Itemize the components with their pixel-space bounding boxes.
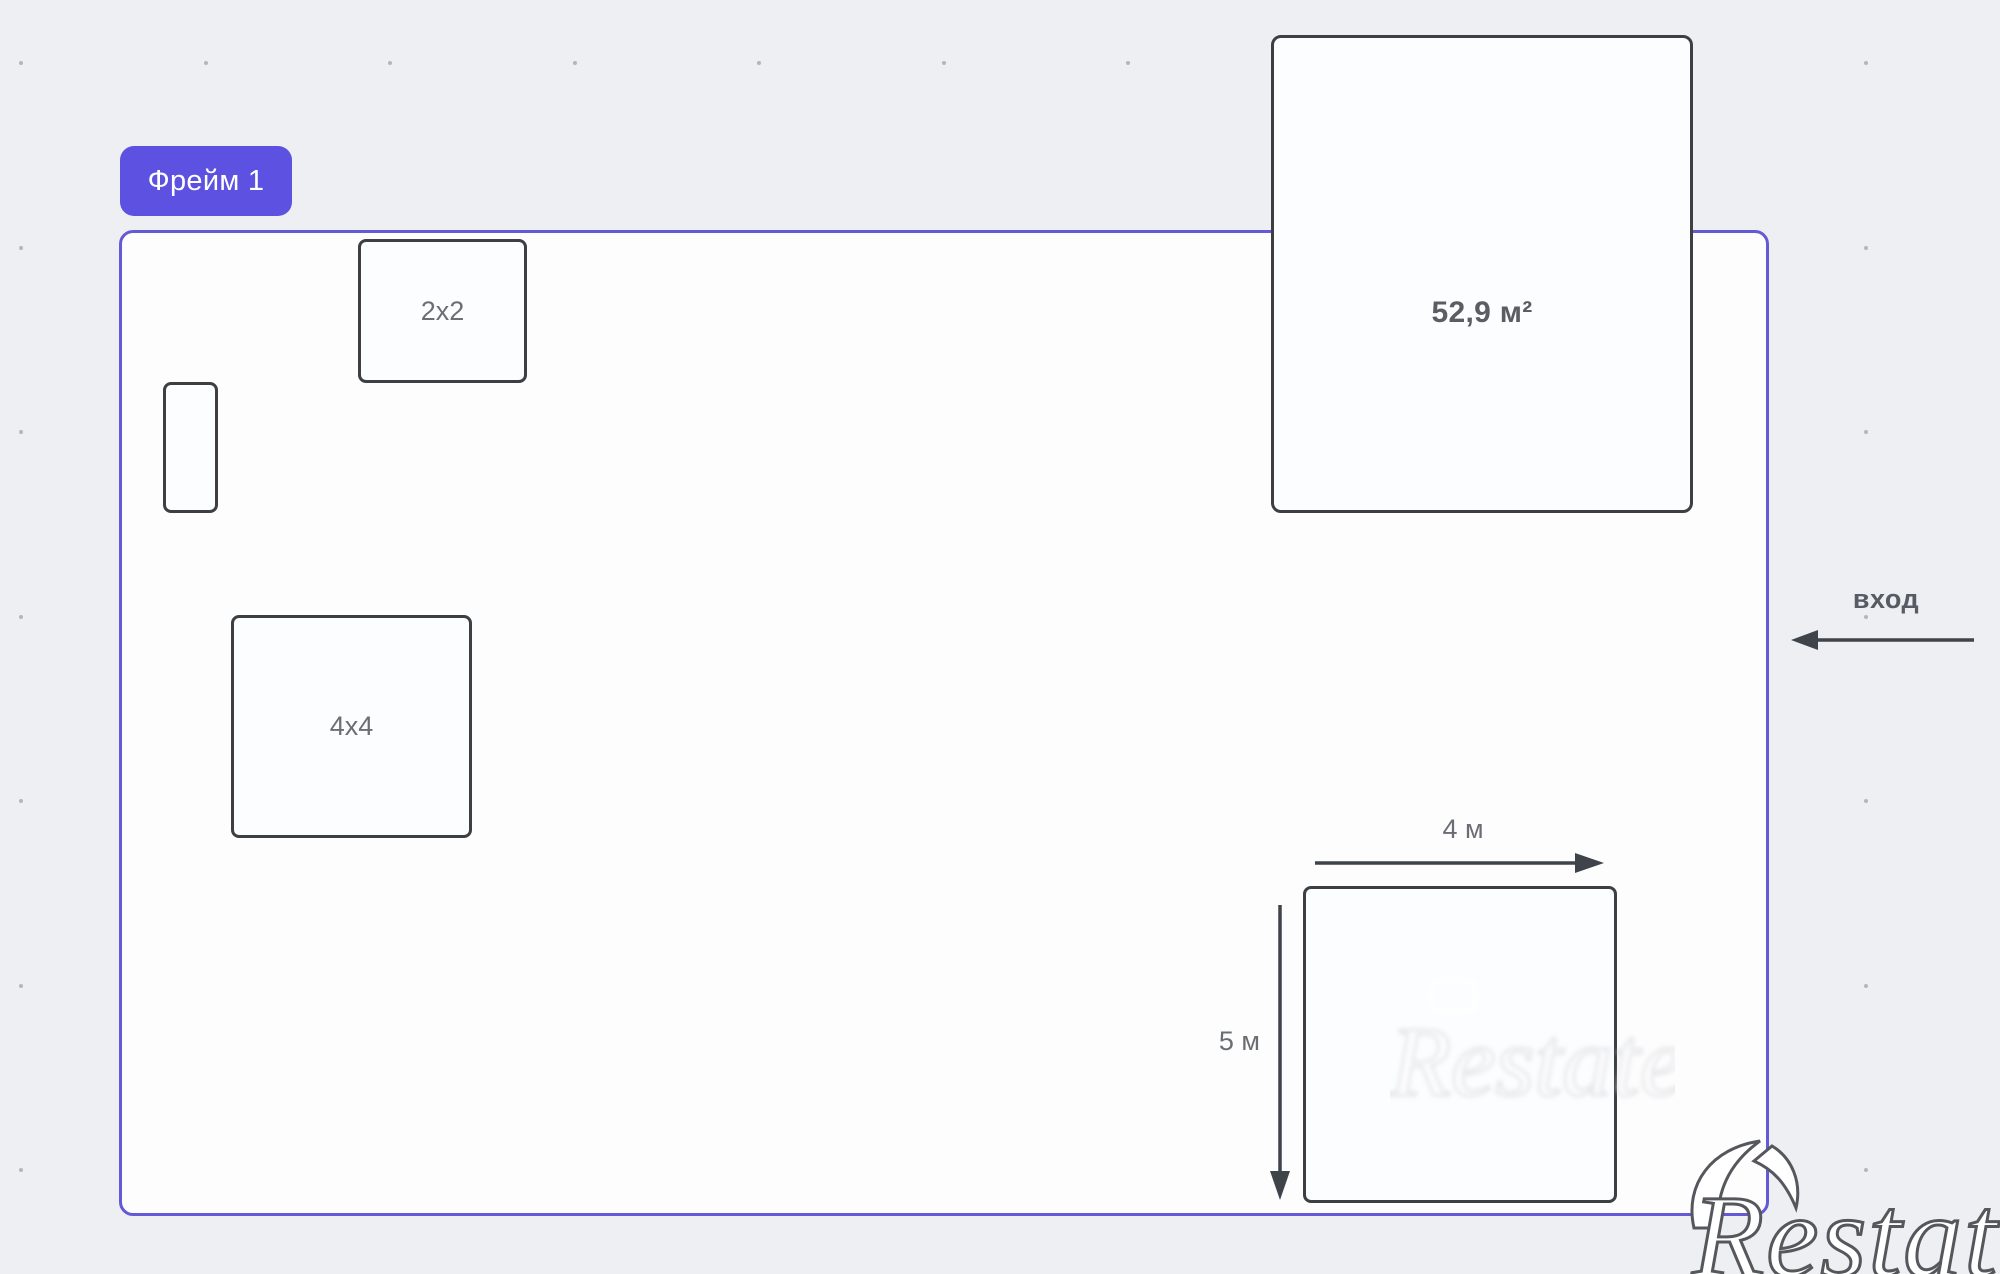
grid-dot (19, 430, 23, 434)
shape-box-small[interactable] (163, 382, 218, 513)
grid-dot (204, 61, 208, 65)
grid-dot (942, 61, 946, 65)
width-dimension-arrow-icon[interactable] (1313, 848, 1608, 878)
shape-box-2x2[interactable]: 2x2 (358, 239, 527, 383)
grid-dot (1126, 61, 1130, 65)
area-value-label: 52,9 м² (1274, 296, 1690, 330)
grid-dot (757, 61, 761, 65)
width-dimension-label[interactable]: 4 м (1398, 814, 1528, 845)
grid-dot (19, 1168, 23, 1172)
grid-dot (19, 615, 23, 619)
whiteboard-canvas[interactable]: Фрейм 1 2x2 4x4 52,9 м² 4 м 5 м вход Res… (0, 0, 2000, 1274)
grid-dot (1864, 984, 1868, 988)
shape-box-4x4-label: 4x4 (330, 711, 374, 742)
grid-dot (19, 799, 23, 803)
grid-dot (19, 246, 23, 250)
shape-box-4x4[interactable]: 4x4 (231, 615, 472, 838)
shape-box-dimensioned[interactable] (1303, 886, 1617, 1203)
grid-dot (1864, 246, 1868, 250)
grid-dot (573, 61, 577, 65)
entrance-label[interactable]: вход (1840, 584, 1932, 615)
grid-dot (19, 984, 23, 988)
grid-dot (1864, 61, 1868, 65)
grid-dot (1864, 1168, 1868, 1172)
height-dimension-arrow-icon[interactable] (1265, 903, 1295, 1203)
grid-dot (19, 61, 23, 65)
height-dimension-label[interactable]: 5 м (1180, 1026, 1260, 1057)
grid-dot (1864, 430, 1868, 434)
grid-dot (1864, 615, 1868, 619)
shape-box-2x2-label: 2x2 (421, 296, 465, 327)
grid-dot (1864, 799, 1868, 803)
entrance-arrow-icon[interactable] (1788, 625, 1978, 655)
shape-box-area[interactable]: 52,9 м² (1271, 35, 1693, 513)
grid-dot (388, 61, 392, 65)
frame-1-label[interactable]: Фрейм 1 (120, 146, 292, 216)
